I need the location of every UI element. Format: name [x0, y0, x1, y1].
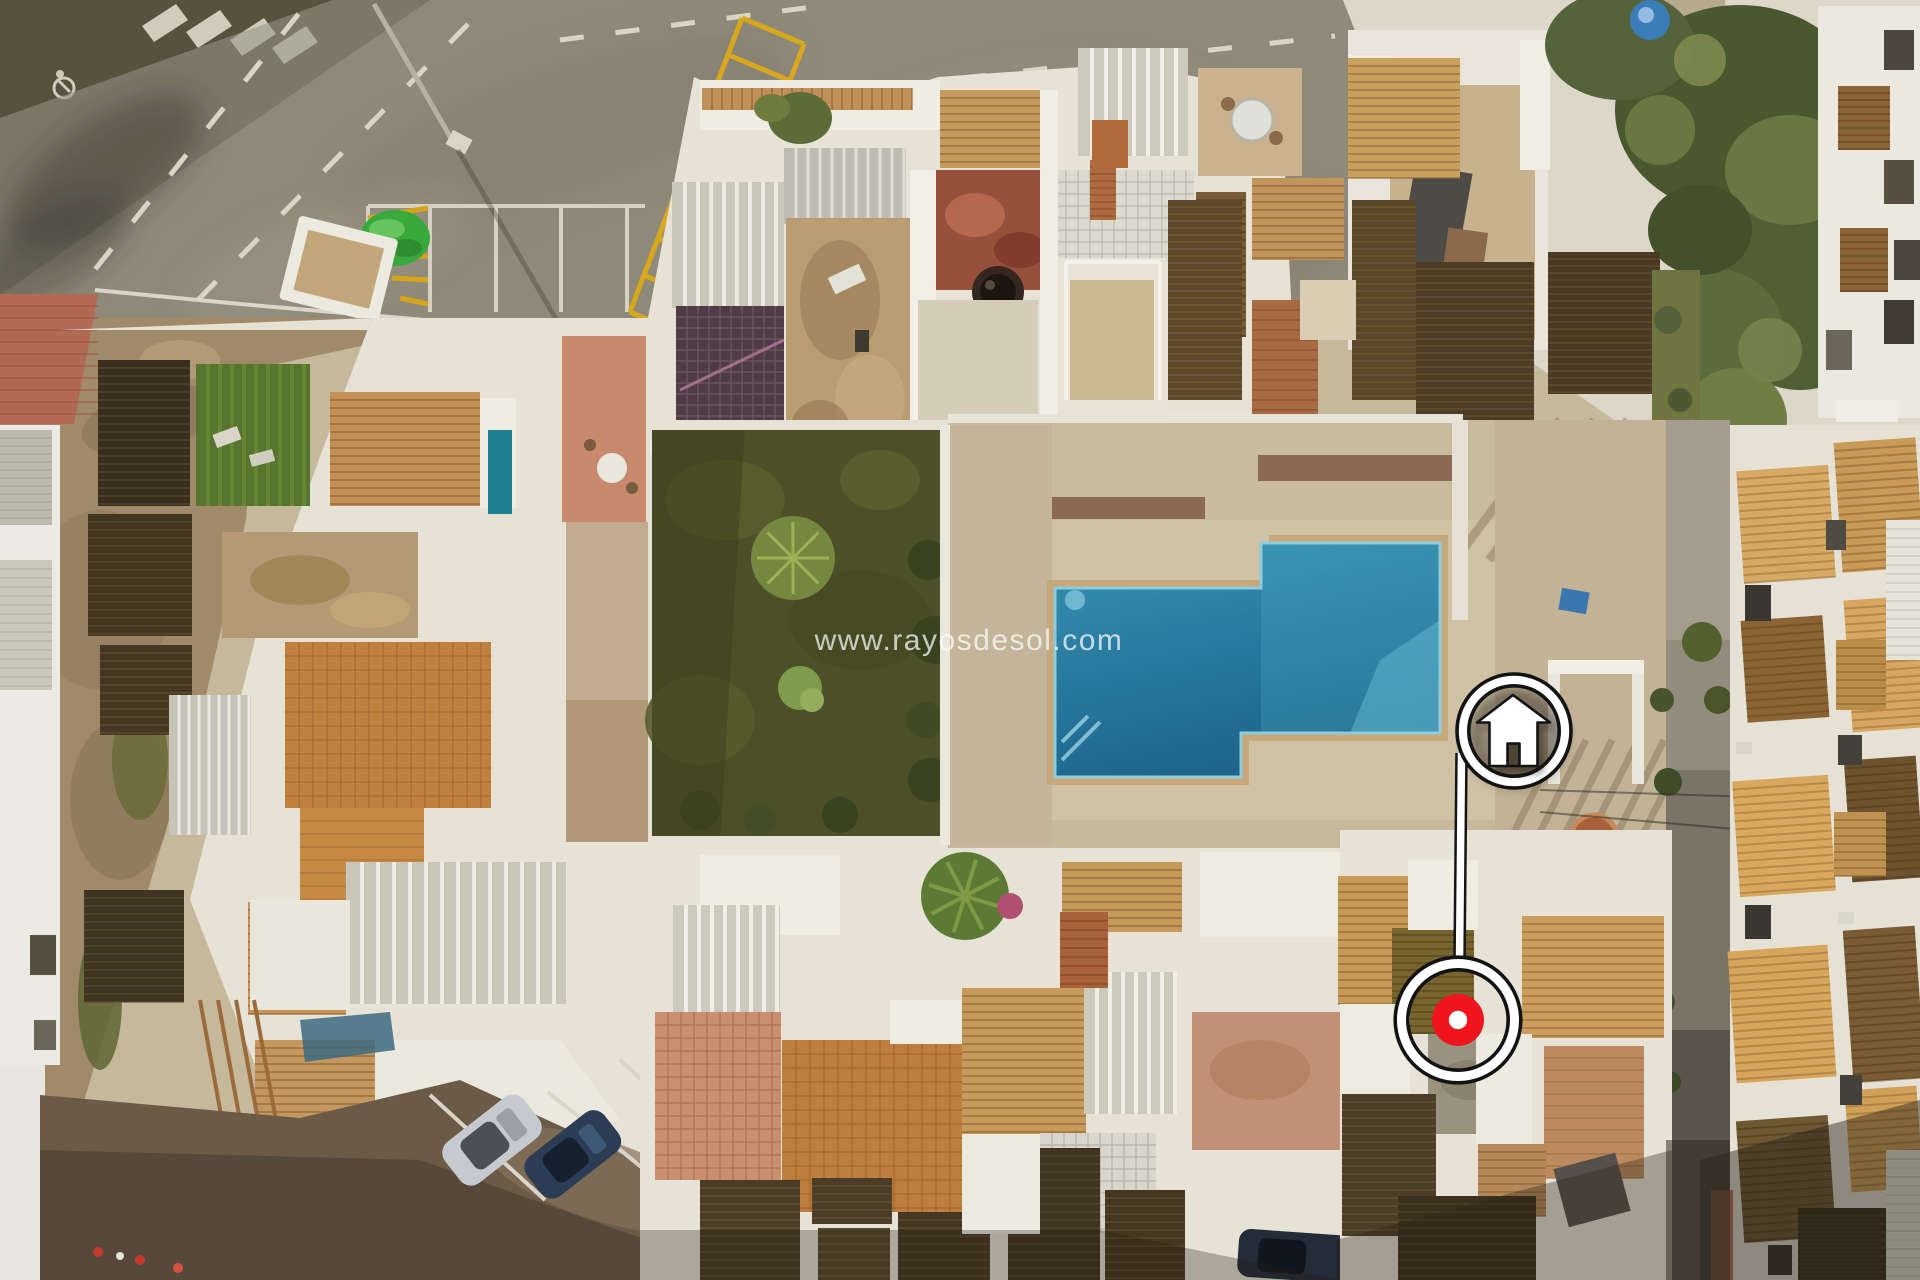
- svg-text:www.rayosdesol.com: www.rayosdesol.com: [814, 624, 1124, 657]
